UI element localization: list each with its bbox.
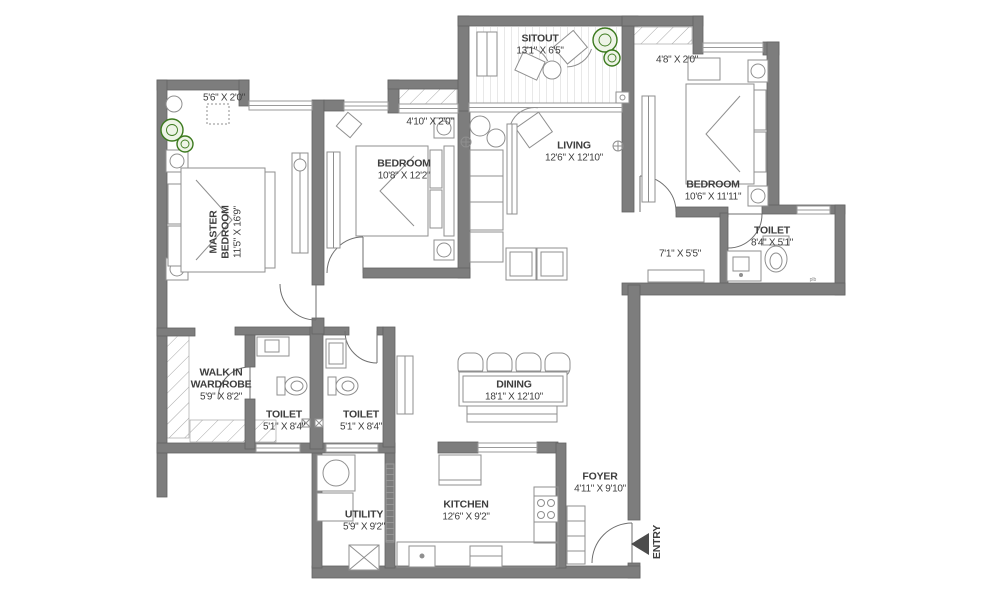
living-furniture [470, 102, 567, 280]
balcony-bedroom2-label: 4'10" X 2'0" [406, 116, 453, 127]
passage-label: 7'1" X 5'5" [659, 248, 701, 259]
bedroom3-label: BEDROOM10'6" X 11'11" [685, 180, 741, 203]
floor-plan-drawing [0, 0, 1000, 600]
sitout-label: SITOUT13'1" X 6'5" [516, 34, 563, 57]
toilet3-label: TOILET8'4" X 5'1" [751, 226, 793, 249]
utility-label: UTILITY5'9" X 9'2" [343, 510, 385, 533]
toilet2-label: TOILET5'1" X 8'4" [340, 410, 382, 433]
dining-label: DINING18'1" X 12'10" [485, 380, 543, 403]
passage-mat [648, 270, 704, 282]
foyer-cabinet [567, 506, 585, 564]
bedroom2-label: BEDROOM10'8" X 12'2" [377, 159, 430, 182]
dining-furniture [397, 353, 570, 422]
toilet1-label: TOILET5'1" X 8'4" [263, 410, 305, 433]
foyer-label: FOYER4'11" X 9'10" [574, 472, 626, 495]
kitchen-label: KITCHEN12'6" X 9'2" [442, 500, 489, 523]
floor-plan: 5'6" X 2'0" SITOUT13'1" X 6'5" 4'8" X 2'… [0, 0, 1000, 600]
balcony-master-label: 5'6" X 2'0" [203, 92, 245, 103]
entry-arrow-icon [631, 533, 649, 555]
plumbing-note: plb [810, 278, 817, 284]
wardrobe-label: WALK IN WARDROBE5'9" X 8'2" [177, 368, 265, 403]
master-bedroom-label: MASTER BEDROOM11'5" X 16'9" [209, 199, 244, 265]
entry-label: ENTRY [652, 525, 664, 559]
bedroom2-furniture [327, 112, 454, 260]
living-label: LIVING12'6" X 12'10" [545, 141, 603, 164]
balcony-bedroom3-label: 4'8" X 2'0" [656, 54, 698, 65]
